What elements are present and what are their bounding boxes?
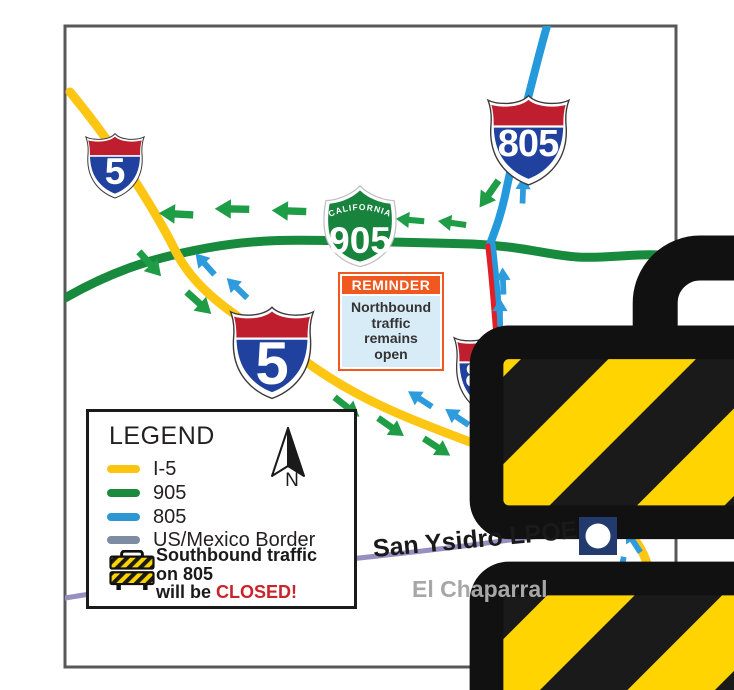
legend-label-905: 905: [153, 481, 186, 505]
barricade-legend-icon: [109, 550, 155, 590]
legend-label-805: 805: [153, 505, 186, 529]
el-chaparral-label: El Chaparral: [412, 576, 548, 602]
shield-number: 805: [498, 123, 559, 165]
reminder-line: traffic: [342, 316, 440, 332]
lpoe-marker-circle: [586, 524, 611, 549]
closure-note-line: Southbound traffic: [156, 546, 317, 565]
legend-swatch-i5: [107, 465, 140, 473]
north-arrow-icon: N: [265, 426, 311, 488]
shield-number: 5: [255, 330, 288, 397]
port-closure-map: 5 5 805 805 CALIFORNIA 905 San Ysidro LP…: [0, 0, 734, 690]
north-label: N: [285, 470, 299, 488]
reminder-line: open: [342, 347, 440, 363]
reminder-callout: REMINDER Northbound traffic remains open: [338, 272, 444, 371]
reminder-title: REMINDER: [342, 276, 440, 294]
legend-swatch-805: [107, 513, 140, 521]
legend-title: LEGEND: [109, 422, 215, 451]
closure-note: Southbound traffic on 805 will be CLOSED…: [156, 546, 317, 602]
closed-highlight: CLOSED!: [216, 582, 297, 602]
closure-note-line: on 805: [156, 565, 317, 584]
reminder-message: Northbound traffic remains open: [342, 296, 440, 367]
shield-number: 905: [329, 220, 391, 261]
reminder-line: Northbound: [342, 300, 440, 316]
legend-label-i5: I-5: [153, 457, 176, 481]
legend-swatch-905: [107, 489, 140, 497]
legend-box: LEGEND N I-5 905 805 US/Mexico Border So…: [86, 409, 357, 609]
legend-swatch-border: [107, 536, 140, 544]
reminder-line: remains: [342, 331, 440, 347]
shield-number: 5: [105, 151, 126, 192]
closure-note-line: will be CLOSED!: [156, 583, 317, 602]
